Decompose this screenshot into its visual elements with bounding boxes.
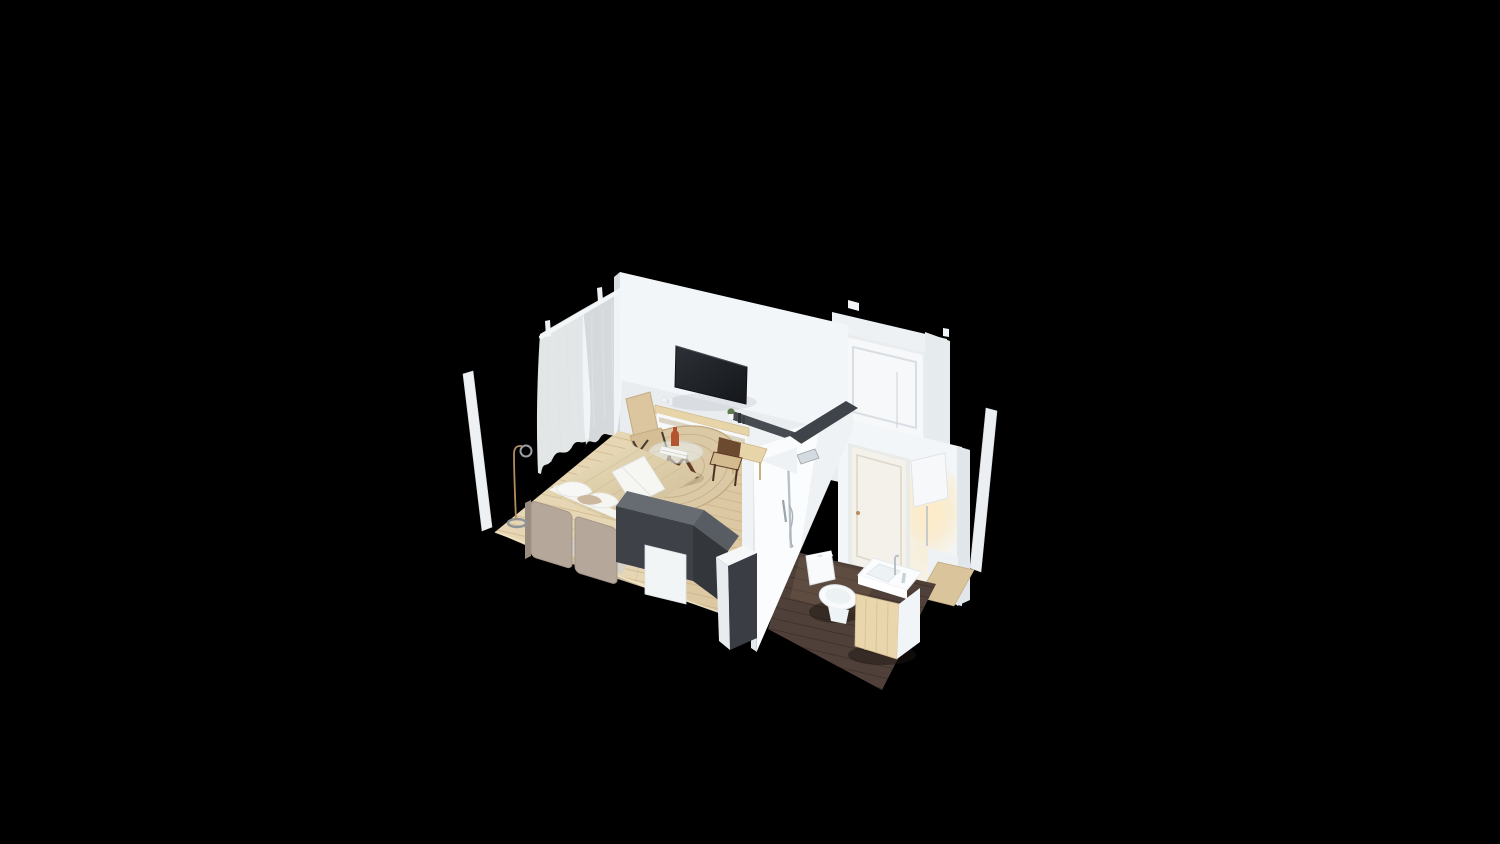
isometric-room-scene: [0, 0, 1500, 844]
console-jar: [669, 398, 672, 405]
render-viewport[interactable]: [0, 0, 1500, 844]
headboard-edge: [525, 500, 531, 559]
headboard-panel-left: [531, 500, 572, 569]
entry-wall-tab-right: [943, 328, 949, 337]
bathroom-door-knob: [856, 511, 860, 515]
wall-stub-face: [728, 553, 757, 650]
wall-sconce: [911, 453, 948, 507]
console-plant-pot: [729, 414, 734, 419]
bedside-cabinet-white: [645, 545, 686, 604]
console-bottle-2: [743, 416, 745, 424]
toilet-flush-button: [817, 555, 822, 557]
console-bottle-1: [738, 413, 741, 423]
console-vase: [661, 397, 666, 402]
